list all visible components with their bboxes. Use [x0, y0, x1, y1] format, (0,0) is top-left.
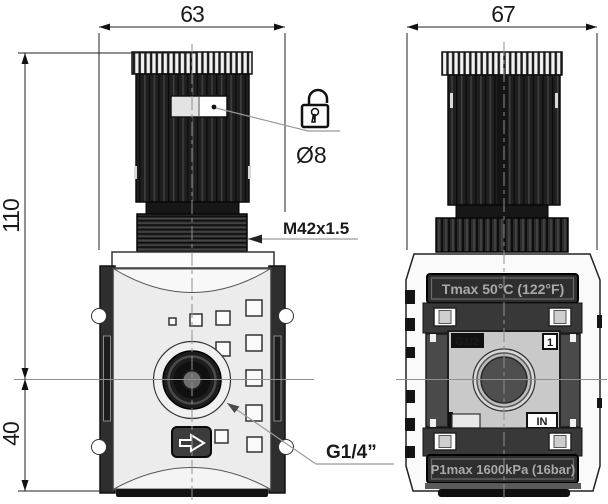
side-view: Tmax 50°C (122°F)	[396, 1, 607, 501]
inlet-marking: IN	[537, 416, 548, 428]
drawing-svg: 63 110 40 M42x1.5	[0, 0, 608, 504]
front-view: 63 110 40 M42x1.5	[0, 1, 394, 501]
dim-side-width-value: 67	[491, 1, 515, 27]
bonnet-thread-label: M42x1.5	[283, 219, 349, 238]
lock-indicator-window	[171, 96, 227, 117]
tmax-plate: Tmax 50°C (122°F)	[427, 274, 578, 303]
dim-front-width-value: 63	[180, 1, 204, 27]
p1max-text: P1max 1600kPa (16bar)	[431, 462, 576, 477]
side-adjustment-knob	[436, 52, 568, 252]
dimension-height-40	[18, 379, 112, 491]
port-number: 1	[547, 337, 553, 349]
open-padlock-icon	[302, 90, 328, 127]
lock-hole-diameter-label: Ø8	[296, 142, 327, 168]
dimension-drawing: 63 110 40 M42x1.5	[0, 0, 608, 504]
dim-height-40-value: 40	[0, 422, 24, 446]
tmax-text: Tmax 50°C (122°F)	[442, 281, 564, 297]
gauge-port-size: G1/2	[455, 336, 479, 348]
outlet-port-label: G1/4”	[326, 442, 377, 463]
dim-height-110-value: 110	[0, 199, 24, 233]
annotation-bonnet-thread: M42x1.5	[248, 219, 358, 244]
p1max-plate: P1max 1600kPa (16bar)	[427, 455, 578, 483]
